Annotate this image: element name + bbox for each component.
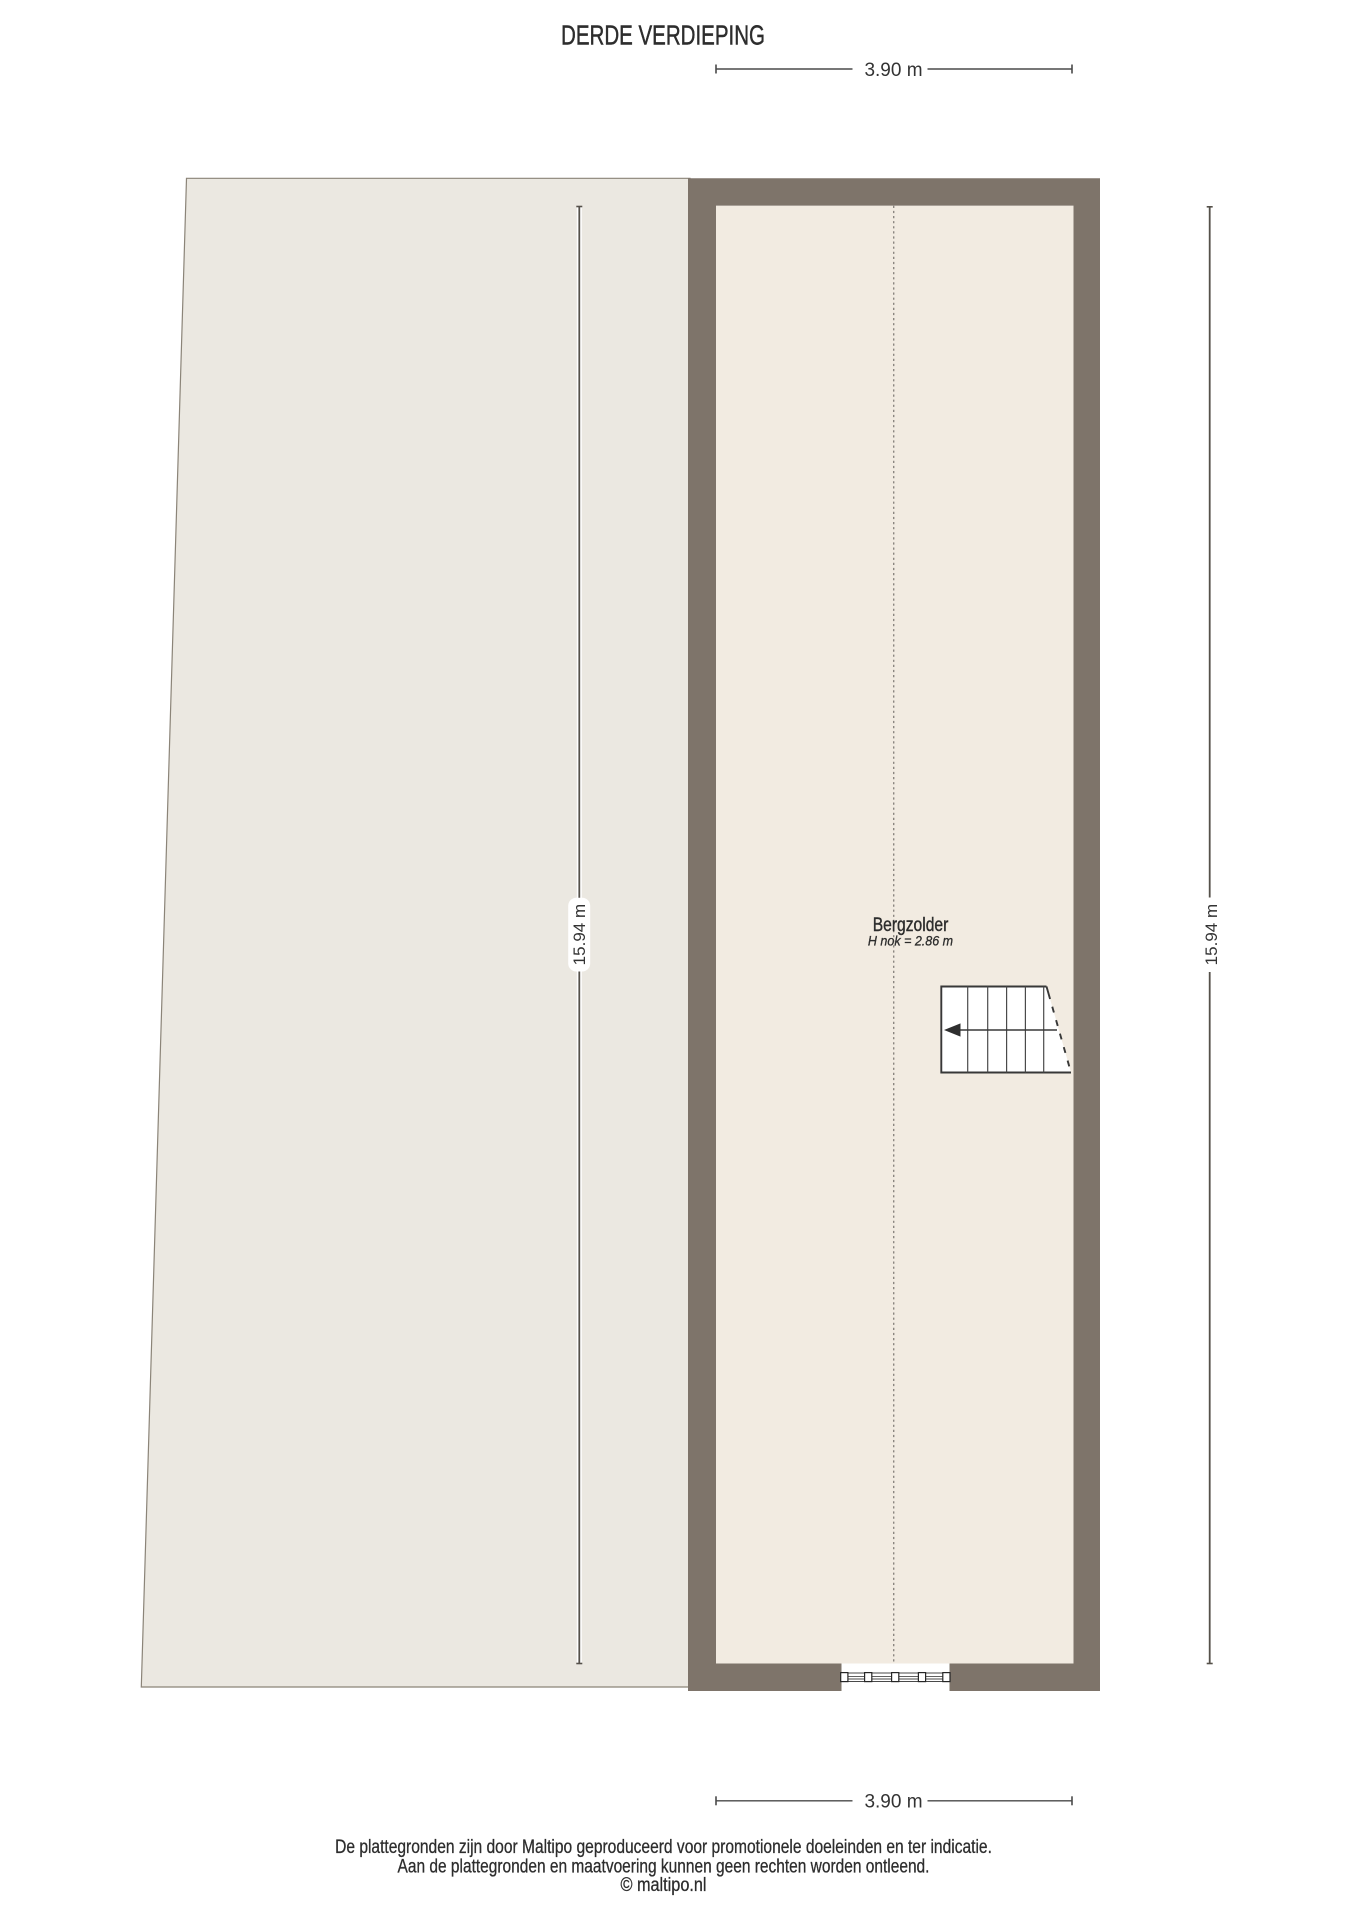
svg-text:15.94 m: 15.94 m [1202, 904, 1221, 965]
svg-text:DERDE VERDIEPING: DERDE VERDIEPING [561, 21, 765, 52]
svg-text:15.94 m: 15.94 m [570, 904, 589, 965]
svg-text:Bergzolder: Bergzolder [873, 913, 949, 935]
svg-text:3.90 m: 3.90 m [864, 60, 922, 81]
svg-text:© maltipo.nl: © maltipo.nl [620, 1874, 706, 1895]
svg-text:H nok = 2.86 m: H nok = 2.86 m [868, 933, 953, 949]
svg-text:3.90 m: 3.90 m [864, 1792, 922, 1813]
